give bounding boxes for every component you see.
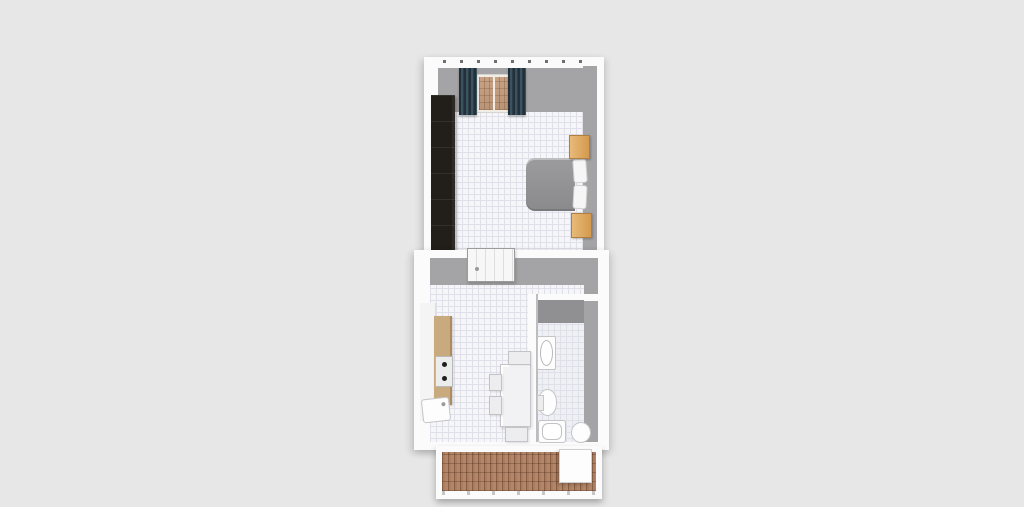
dining-table[interactable] — [500, 364, 531, 427]
bathtub[interactable] — [538, 420, 566, 443]
nightstand-bottom[interactable] — [571, 213, 592, 238]
pillow — [572, 185, 587, 210]
dining-chair[interactable] — [489, 374, 502, 391]
wardrobe[interactable] — [431, 95, 455, 252]
floor-plan-canvas — [0, 0, 1024, 507]
bathroom-wall-shadow — [536, 300, 584, 323]
balcony-table[interactable] — [559, 449, 592, 483]
bed-duvet — [526, 158, 575, 211]
window-frame-marks — [443, 60, 595, 63]
kitchen-sink[interactable] — [421, 397, 451, 424]
bidet-toilet[interactable] — [571, 422, 591, 443]
interior-door[interactable] — [467, 248, 515, 282]
burner-icon — [442, 362, 447, 367]
lower-right-wall — [584, 258, 598, 442]
pillow — [572, 159, 588, 184]
window-shade-panel — [479, 77, 508, 110]
dining-chair[interactable] — [505, 427, 528, 442]
double-bed[interactable] — [526, 158, 586, 211]
cooktop[interactable] — [435, 356, 453, 387]
curtain-right[interactable] — [508, 68, 526, 115]
balcony-baluster-marks — [442, 491, 596, 495]
window-roman-shade[interactable] — [476, 74, 511, 113]
nightstand-top[interactable] — [569, 135, 590, 159]
dining-chair[interactable] — [508, 351, 531, 365]
toilet[interactable] — [538, 389, 557, 416]
burner-icon — [442, 376, 447, 381]
bathroom-washbasin[interactable] — [537, 336, 556, 370]
dining-chair[interactable] — [489, 396, 502, 415]
curtain-left[interactable] — [459, 68, 477, 115]
